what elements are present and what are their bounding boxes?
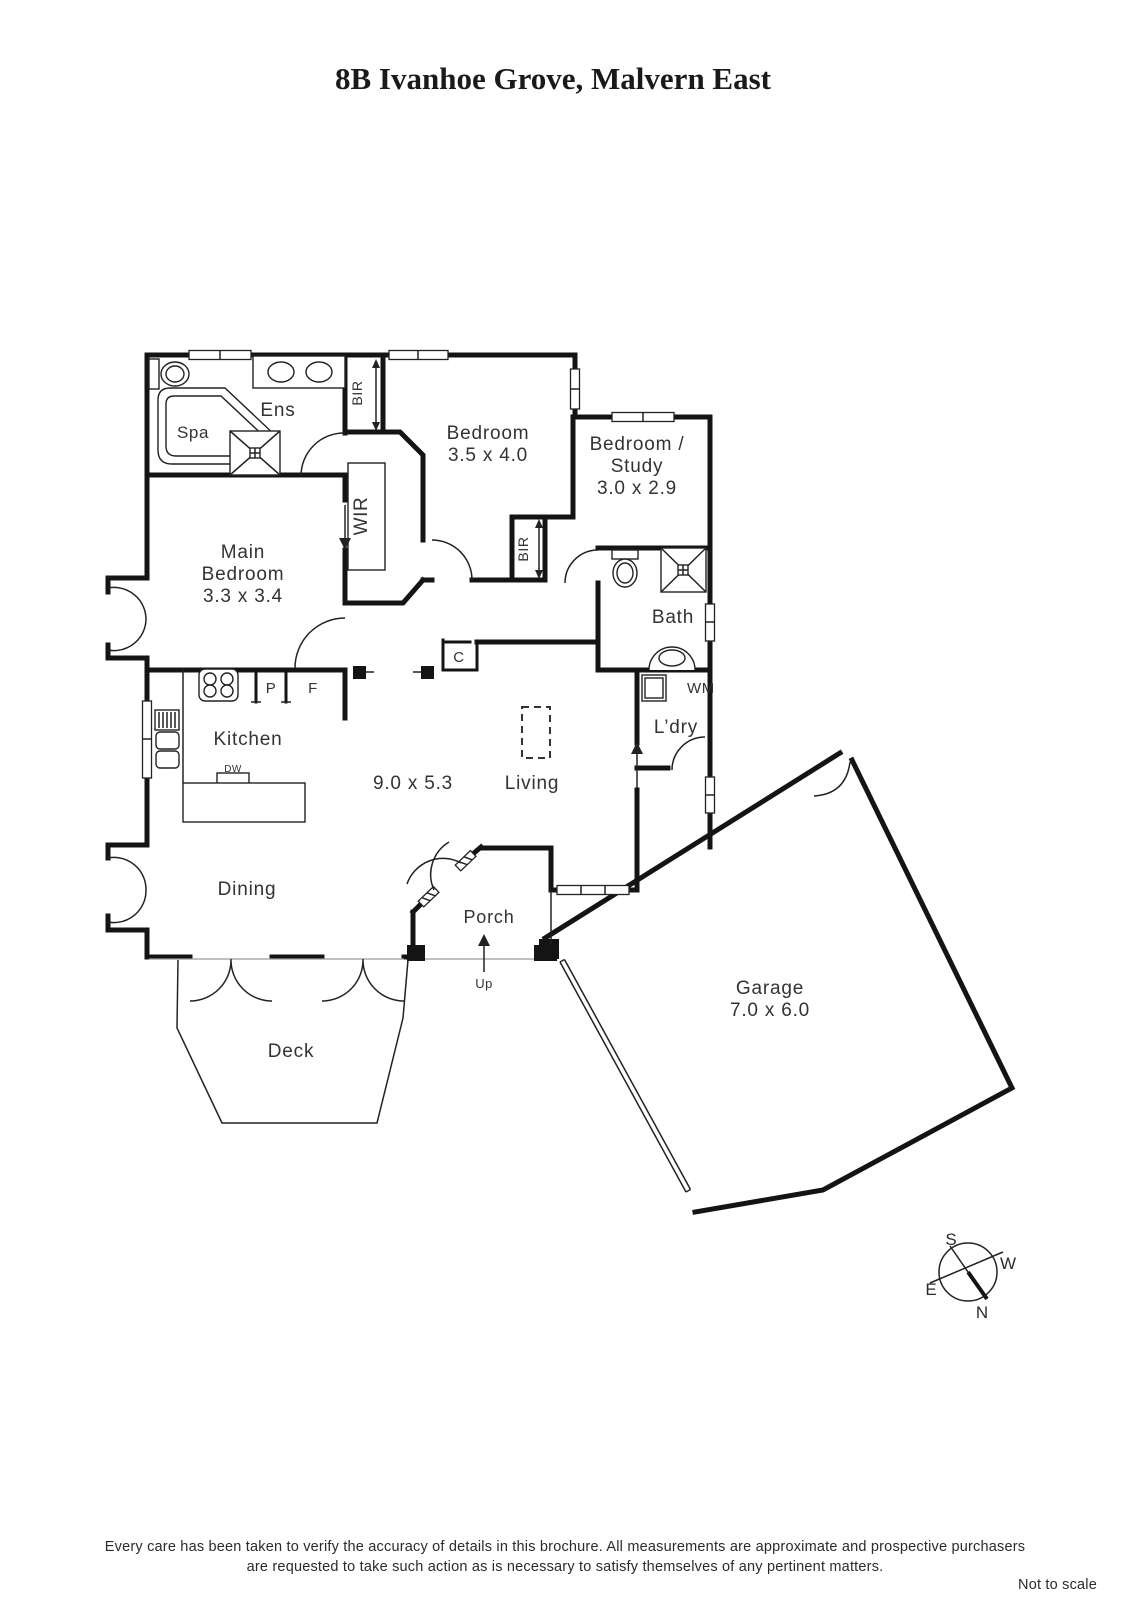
main-bedroom-bay-doors (108, 587, 146, 650)
disclaimer-line1: Every care has been taken to verify the … (105, 1539, 1025, 1555)
label-cupboard: C (453, 649, 464, 666)
basin-icon (649, 647, 695, 670)
deck-french-doors-left (190, 959, 272, 1001)
door-arcs (108, 433, 705, 1001)
hall-door-arc (295, 618, 345, 668)
label-bir-bedroom: BIR (515, 536, 531, 561)
porch-post (534, 945, 557, 961)
bir-dimension-arrow (372, 359, 380, 431)
compass-n: N (976, 1303, 988, 1322)
label-garage: Garage (736, 978, 804, 999)
porch-post (407, 945, 425, 961)
porch-up-arrow (478, 934, 490, 972)
label-living: Living (505, 773, 559, 794)
porch-entry-doors (407, 842, 461, 890)
label-bedroom: Bedroom (447, 423, 530, 444)
living-dashed-feature (522, 707, 550, 758)
compass-w: W (1000, 1254, 1016, 1273)
cooktop-icon (199, 669, 238, 701)
column-post (353, 666, 366, 679)
vanity-icon (253, 356, 345, 388)
window (143, 701, 152, 778)
label-fridge: F (308, 680, 318, 697)
window (706, 777, 715, 813)
label-main-bedroom-dims: 3.3 x 3.4 (203, 586, 283, 607)
label-wir: WIR (351, 497, 372, 536)
window (557, 886, 629, 895)
page-title: 8B Ivanhoe Grove, Malvern East (335, 61, 772, 96)
floorplan-canvas: 8B Ivanhoe Grove, Malvern East (0, 0, 1131, 1600)
shower-icon (230, 431, 280, 475)
label-bath: Bath (652, 607, 694, 628)
label-bir-top: BIR (349, 380, 365, 405)
deck-french-doors-right (322, 959, 404, 1001)
laundry-door-arc (672, 737, 705, 770)
window (571, 369, 580, 409)
window (612, 413, 674, 422)
kitchen-peninsula (183, 783, 305, 822)
label-porch: Porch (463, 907, 514, 927)
label-study-1: Bedroom / (590, 434, 685, 455)
label-spa: Spa (177, 423, 209, 442)
label-laundry: L’dry (654, 717, 698, 738)
sink-icon (155, 710, 179, 768)
porch-sidelight (418, 887, 439, 907)
window (389, 351, 448, 360)
label-pantry: P (266, 680, 277, 697)
disclaimer-line2: are requested to take such action as is … (247, 1559, 884, 1575)
porch-sidelight (455, 851, 476, 871)
compass-rose: S W E N (925, 1230, 1016, 1322)
window (706, 604, 715, 641)
column-post (421, 666, 434, 679)
shower-icon (661, 548, 706, 592)
not-to-scale: Not to scale (1018, 1577, 1097, 1593)
compass-s: S (945, 1230, 956, 1249)
label-washing-machine: WM (687, 680, 715, 697)
garage-door (560, 960, 691, 1193)
toilet-icon (149, 359, 189, 389)
label-dishwasher: DW (224, 764, 242, 775)
bedroom-door-arc (432, 540, 472, 580)
label-kitchen: Kitchen (214, 729, 283, 750)
toilet-icon (612, 550, 638, 587)
bath-door-arc (565, 550, 598, 583)
bir2-dimension-arrow (535, 519, 543, 579)
label-up: Up (475, 976, 493, 991)
label-main-bedroom-2: Bedroom (202, 564, 285, 585)
label-study-dims: 3.0 x 2.9 (597, 478, 677, 499)
label-dining: Dining (218, 879, 277, 900)
ens-door-arc (301, 433, 345, 476)
label-garage-dims: 7.0 x 6.0 (730, 1000, 810, 1021)
floorplan-page: 8B Ivanhoe Grove, Malvern East (0, 0, 1131, 1600)
label-study-2: Study (611, 456, 664, 477)
compass-e: E (925, 1280, 936, 1299)
label-deck: Deck (268, 1041, 315, 1062)
label-main-bedroom-1: Main (221, 542, 265, 563)
label-ens: Ens (260, 400, 295, 421)
label-living-dims: 9.0 x 5.3 (373, 773, 453, 794)
laundry-arrow (631, 742, 643, 788)
window (189, 351, 251, 360)
washing-machine-icon (642, 675, 666, 701)
label-bedroom-dims: 3.5 x 4.0 (448, 445, 528, 466)
dining-bay-doors (108, 857, 146, 922)
